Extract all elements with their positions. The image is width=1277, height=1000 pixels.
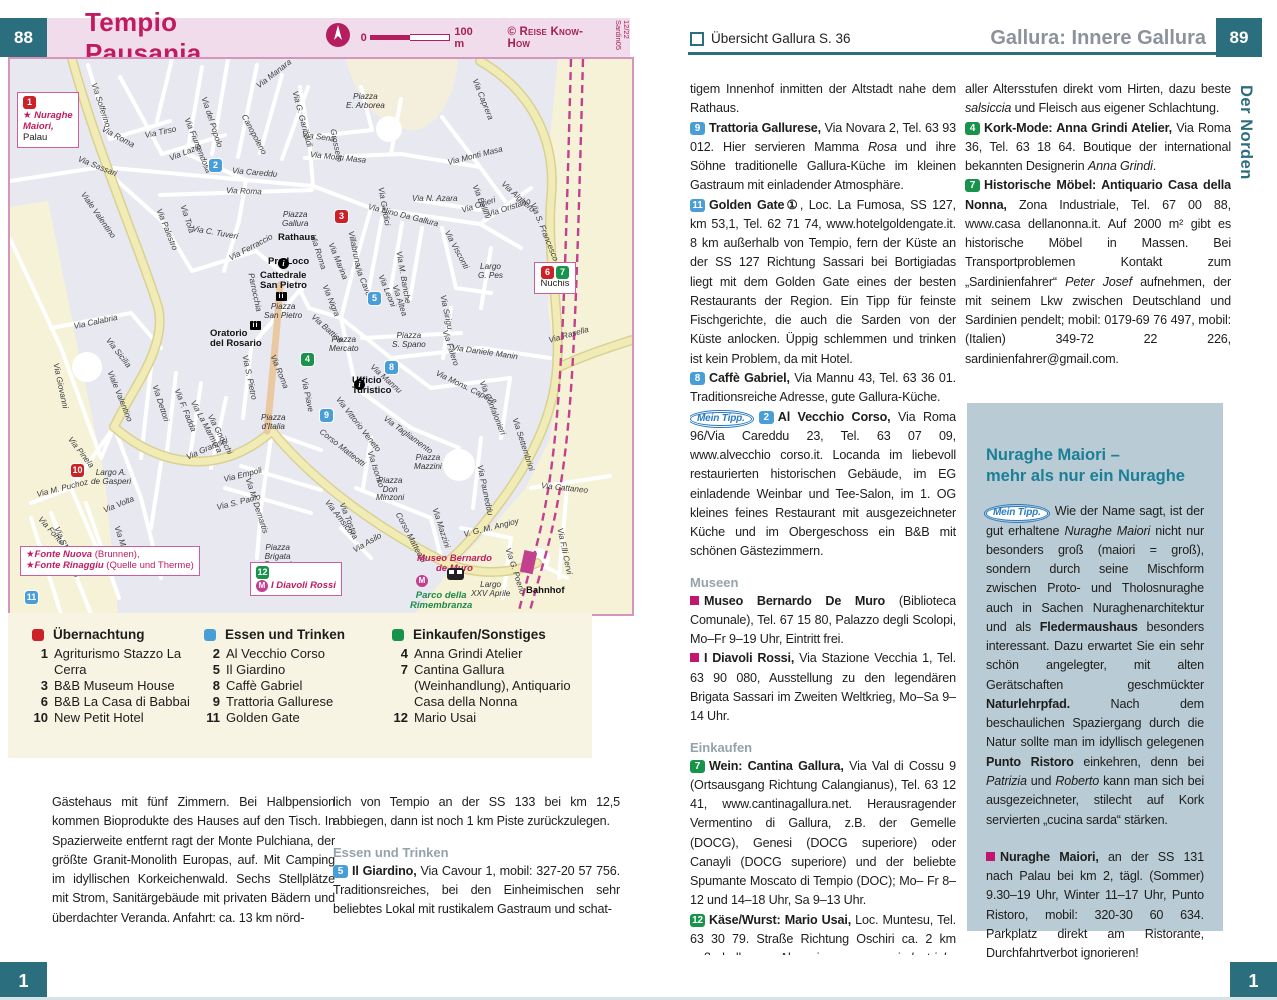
map-label: Piazza Don Minzoni xyxy=(376,477,404,503)
text-run: Anna Grindi xyxy=(1088,159,1153,173)
text-run: , Loc. La Fumosa, SS 127, km 53,1, Tel. … xyxy=(690,198,956,366)
map-label: Piazza Gallura xyxy=(282,211,308,228)
legend-item: 10New Petit Hotel xyxy=(32,710,204,726)
map-marker: 1 xyxy=(23,96,36,109)
legend-item-number: 2 xyxy=(204,646,226,662)
map-info-icon: i xyxy=(278,258,289,269)
infobox-title: Nuraghe Maiori – mehr als nur ein Nuragh… xyxy=(986,445,1204,486)
text-run: und xyxy=(1027,774,1056,788)
paragraph: 4Kork-Mode: Anna Grindi Atelier, Via Rom… xyxy=(965,119,1231,177)
section-heading: Museen xyxy=(690,575,956,590)
infobox-body: Mein Tipp.Wie der Name sagt, ist der gut… xyxy=(986,502,1204,963)
map-label: Largo G. Pes xyxy=(478,263,503,280)
text-run: lich von Tempio an der SS 133 bei km 12,… xyxy=(333,795,620,828)
text-marker-badge: 4 xyxy=(965,122,980,135)
text-run: Käse/Wurst: Mario Usai, xyxy=(709,913,855,927)
legend-column: Übernachtung1Agriturismo Stazzo La Cerra… xyxy=(8,627,204,758)
scale-zero: 0 xyxy=(361,32,367,44)
legend-item-label: Golden Gate xyxy=(226,710,392,726)
header-rule xyxy=(688,52,1216,55)
legend-item-number: 7 xyxy=(392,662,414,710)
callout-direction-label: Nuchis xyxy=(540,279,570,290)
legend-item: 6B&B La Casa di Babbai xyxy=(32,694,204,710)
museum-name: I Diavoli Rossi xyxy=(271,580,336,591)
legend-item-label: Cantina Gallura (Weinhandlung), Antiquar… xyxy=(414,662,588,710)
text-run: Trattoria Gallurese, xyxy=(709,121,825,135)
text-run: aller Altersstufen direkt vom Hirten, da… xyxy=(965,82,1231,96)
legend-item-number: 12 xyxy=(392,710,414,726)
map-label: Piazza d'Italia xyxy=(261,414,286,431)
star-icon: ★ xyxy=(23,110,34,121)
map-label: Via Roma xyxy=(226,187,262,197)
map-label: Via N. Azara xyxy=(412,195,458,204)
paragraph: 5Il Giardino, Via Cavour 1, mobil: 327-2… xyxy=(333,862,620,920)
scale-bar-open xyxy=(410,34,451,41)
map-label: Piazza E. Arborea xyxy=(346,93,385,110)
legend-item-label: Trattoria Gallurese xyxy=(226,694,392,710)
text-run: Nuraghe Maiori, xyxy=(1000,850,1108,864)
text-run: salsiccia xyxy=(965,101,1011,115)
map-legend: Übernachtung1Agriturismo Stazzo La Cerra… xyxy=(8,613,592,758)
text-run: Naturlehrpfad. xyxy=(986,697,1070,711)
legend-item-label: Mario Usai xyxy=(414,710,588,726)
map-label: Largo A. de Gasperi xyxy=(91,469,131,486)
legend-category-label: Essen und Trinken xyxy=(225,627,345,643)
legend-category: Einkaufen/Sonstiges xyxy=(392,627,588,643)
text-run: . xyxy=(1153,159,1156,173)
map-label: Piazza Mercato xyxy=(329,336,359,353)
map-marker: 12 xyxy=(256,566,269,579)
callout-diavoli-rossi: 12MI Diavoli Rossi xyxy=(250,562,342,596)
spring-desc: (Quelle und Therme) xyxy=(104,560,194,571)
city-map-tempio-pausania: Via SolferinoVia ManaraVia del PopoloVia… xyxy=(8,57,634,616)
legend-category: Essen und Trinken xyxy=(204,627,392,643)
copyright: © Reise Know-How xyxy=(507,26,605,50)
cross-reference-label: Übersicht Gallura S. 36 xyxy=(711,31,851,46)
text-marker-badge: 12 xyxy=(690,914,705,927)
text-marker-badge: 7 xyxy=(965,179,980,192)
legend-category-label: Einkaufen/Sonstiges xyxy=(413,627,546,643)
section-heading: Essen und Trinken xyxy=(333,845,620,860)
map-marker: 5 xyxy=(368,292,381,305)
map-label: Parco della Rimembranza xyxy=(410,591,472,611)
callout-fonte: ★Fonte Nuova (Brunnen),★Fonte Rinaggiu (… xyxy=(20,546,200,576)
text-run: Gästehaus mit fünf Zimmern. Bei Halbpens… xyxy=(52,795,335,925)
legend-item: 7Cantina Gallura (Weinhandlung), Antiqua… xyxy=(392,662,588,710)
paragraph: lich von Tempio an der SS 133 bei km 12,… xyxy=(333,793,620,832)
legend-color-swatch xyxy=(32,629,44,641)
text-run: Kork-Mode: Anna Grindi Atelier, xyxy=(984,121,1176,135)
compass-icon xyxy=(325,22,351,53)
magenta-bullet xyxy=(690,653,699,662)
callout-nuchis: 67Nuchis xyxy=(534,262,576,294)
text-marker-badge: 11 xyxy=(690,199,705,212)
page-number-left: 88 xyxy=(0,18,47,57)
nuraghe-maiori-infobox: Nuraghe Maiori – mehr als nur ein Nuragh… xyxy=(967,403,1223,931)
map-label: Oratorio del Rosario xyxy=(210,329,262,349)
text-run: Patrizia xyxy=(986,774,1027,788)
legend-item-label: Anna Grindi Atelier xyxy=(414,646,588,662)
legend-item-label: Agriturismo Stazzo La Cerra xyxy=(54,646,204,678)
text-marker-badge: 5 xyxy=(333,865,348,878)
text-run: zona industriale xyxy=(861,951,952,955)
paragraph: Museo Bernardo De Muro (Biblioteca Comun… xyxy=(690,592,956,650)
legend-item-number: 1 xyxy=(32,646,54,678)
text-run: und Fleisch aus eigener Schlachtung. xyxy=(1011,101,1219,115)
map-label: Piazza San Pietro xyxy=(264,303,302,320)
left-text-column-2: lich von Tempio an der SS 133 bei km 12,… xyxy=(333,793,620,958)
chapter-side-tab: Der Norden xyxy=(1236,85,1255,235)
paragraph: Mein Tipp.Wie der Name sagt, ist der gut… xyxy=(986,502,1204,830)
legend-item-label: Al Vecchio Corso xyxy=(226,646,392,662)
legend-item-number: 9 xyxy=(204,694,226,710)
text-run: Il Giardino, xyxy=(352,864,420,878)
paragraph: 8Caffè Gabriel, Via Mannu 43, Tel. 63 36… xyxy=(690,369,956,408)
map-label: Piazza Mazzini xyxy=(414,454,442,471)
chapter-title: Gallura: Innere Gallura xyxy=(900,27,1206,50)
legend-item: 12Mario Usai xyxy=(392,710,588,726)
magenta-bullet xyxy=(986,852,995,861)
paragraph: tigem Innenhof inmitten der Altstadt nah… xyxy=(690,80,956,119)
map-marker: 4 xyxy=(301,353,314,366)
paragraph: 9Trattoria Gallurese, Via Novara 2, Tel.… xyxy=(690,119,956,196)
legend-item-number: 8 xyxy=(204,678,226,694)
legend-item-number: 6 xyxy=(32,694,54,710)
legend-item: 1Agriturismo Stazzo La Cerra xyxy=(32,646,204,678)
text-marker-badge: 9 xyxy=(690,122,705,135)
map-marker: 2 xyxy=(209,159,222,172)
paragraph: aller Altersstufen direkt vom Hirten, da… xyxy=(965,80,1231,119)
text-marker-badge: 8 xyxy=(690,372,705,385)
text-run: Via Val di Cossu 9 (Ortsausgang Richtung… xyxy=(690,759,956,908)
legend-color-swatch xyxy=(204,629,216,641)
scale-bar-solid xyxy=(370,35,410,40)
text-run: Punto Ristoro xyxy=(986,755,1074,769)
mein-tipp-badge: Mein Tipp. xyxy=(986,506,1048,521)
text-run: Fledermaushaus xyxy=(1040,620,1138,634)
map-title-bar: Tempio Pausania 0 100 m © Reise Know-How… xyxy=(47,18,630,57)
guidebook-spread: 88 Tempio Pausania 0 100 m © Reise Know-… xyxy=(0,0,1277,1000)
map-marker: 7 xyxy=(556,266,569,279)
legend-category: Übernachtung xyxy=(32,627,204,643)
paragraph: 11Golden Gate①, Loc. La Fumosa, SS 127, … xyxy=(690,196,956,369)
legend-item-label: Il Giardino xyxy=(226,662,392,678)
paragraph: 7Wein: Cantina Gallura, Via Val di Cossu… xyxy=(690,757,956,911)
text-run: einkehren, denn bei xyxy=(1074,755,1204,769)
paragraph: Nuraghe Maiori, an der SS 131 nach Palau… xyxy=(986,848,1204,964)
star-icon: ★ xyxy=(26,549,35,560)
map-marker: 9 xyxy=(320,409,333,422)
magenta-bullet xyxy=(690,596,699,605)
legend-column: Einkaufen/Sonstiges4Anna Grindi Atelier7… xyxy=(392,627,588,758)
map-label: Piazza S. Spano xyxy=(392,332,426,349)
text-run: Al Vecchio Corso, xyxy=(778,410,898,424)
callout-subtitle: Palau xyxy=(23,133,73,144)
text-run: Via Roma 96/Via Careddu 23, Tel. 63 07 0… xyxy=(690,410,956,559)
map-marker: 11 xyxy=(25,591,38,604)
section-heading: Einkaufen xyxy=(690,740,956,755)
map-scale: 0 100 m xyxy=(361,26,486,50)
map-marker: 8 xyxy=(385,361,398,374)
legend-item: 2Al Vecchio Corso xyxy=(204,646,392,662)
callout-line: ★Fonte Rinaggiu (Quelle und Therme) xyxy=(26,561,194,572)
cross-reference: Übersicht Gallura S. 36 xyxy=(690,31,851,46)
metro-icon: M xyxy=(256,580,268,592)
text-marker-badge: 2 xyxy=(759,411,774,424)
right-text-column: aller Altersstufen direkt vom Hirten, da… xyxy=(965,80,1231,398)
spring-desc: (Brunnen), xyxy=(92,549,140,560)
legend-item-number: 10 xyxy=(32,710,54,726)
middle-text-column: tigem Innenhof inmitten der Altstadt nah… xyxy=(690,80,956,955)
text-run: I Diavoli Rossi, xyxy=(704,651,799,665)
legend-item-number: 5 xyxy=(204,662,226,678)
legend-item-number: 4 xyxy=(392,646,414,662)
text-run: Rosa xyxy=(868,140,897,154)
paragraph: I Diavoli Rossi, Via Stazione Vecchia 1,… xyxy=(690,649,956,726)
mein-tipp-badge: Mein Tipp. xyxy=(690,412,752,427)
text-marker-badge: 7 xyxy=(690,760,705,773)
text-run: Wein: Cantina Gallura, xyxy=(709,759,849,773)
callout-line: MI Diavoli Rossi xyxy=(256,580,336,592)
left-text-column-1: Gästehaus mit fünf Zimmern. Bei Halbpens… xyxy=(52,793,335,958)
star-icon: ★ xyxy=(26,560,35,571)
map-bus-icon xyxy=(447,568,464,580)
text-run: Peter Josef xyxy=(1065,275,1132,289)
map-label: Largo XXV Aprile xyxy=(471,581,510,598)
map-reference-icon xyxy=(690,32,704,46)
legend-item-label: B&B Museum House xyxy=(54,678,204,694)
legend-item: 5Il Giardino xyxy=(204,662,392,678)
map-metro-icon: M xyxy=(416,575,428,587)
legend-item-label: Caffè Gabriel xyxy=(226,678,392,694)
scale-label: 100 m xyxy=(454,26,485,50)
text-run: Museo Bernardo De Muro xyxy=(704,594,899,608)
paragraph: 12Käse/Wurst: Mario Usai, Loc. Muntesu, … xyxy=(690,911,956,955)
text-run: Nuraghe Maiori xyxy=(1064,524,1150,538)
text-run: Golden Gate① xyxy=(709,198,800,212)
map-marker: 3 xyxy=(335,210,348,223)
map-museum-icon: ii xyxy=(250,321,261,330)
legend-item: 11Golden Gate xyxy=(204,710,392,726)
map-museum-icon: ii xyxy=(276,292,287,301)
map-edition: Sardin05 12/22 xyxy=(614,20,631,56)
spring-name: Fonte Nuova xyxy=(35,549,93,560)
text-run: an der SS 131 nach Palau bei km 2, tägl.… xyxy=(986,850,1204,960)
map-label: Cattedrale San Pietro xyxy=(260,271,307,291)
map-label: Bahnhof xyxy=(526,586,565,596)
text-run: nicht nur besonders groß (maiori = groß)… xyxy=(986,524,1204,634)
legend-item-number: 11 xyxy=(204,710,226,726)
map-marker: 6 xyxy=(541,266,554,279)
legend-item: 9Trattoria Gallurese xyxy=(204,694,392,710)
paragraph: Gästehaus mit fünf Zimmern. Bei Halbpens… xyxy=(52,793,335,928)
map-info-icon: i xyxy=(354,379,365,390)
legend-item-number: 3 xyxy=(32,678,54,694)
legend-column: Essen und Trinken2Al Vecchio Corso5Il Gi… xyxy=(204,627,392,758)
legend-item: 4Anna Grindi Atelier xyxy=(392,646,588,662)
map-marker: 10 xyxy=(71,464,84,477)
legend-item: 3B&B Museum House xyxy=(32,678,204,694)
chapter-tab-bottom-left: 1 xyxy=(0,962,47,1000)
chapter-tab-bottom-right: 1 xyxy=(1230,962,1277,1000)
page-number-right: 89 xyxy=(1216,18,1262,57)
legend-color-swatch xyxy=(392,629,404,641)
callout-name: ★ Nuraghe Maiori, xyxy=(23,111,73,133)
legend-item-label: B&B La Casa di Babbai xyxy=(54,694,204,710)
text-run: Roberto xyxy=(1055,774,1099,788)
paragraph: 7Historische Möbel: Antiquario Casa dell… xyxy=(965,176,1231,369)
spring-name: Fonte Rinaggiu xyxy=(35,560,104,571)
legend-category-label: Übernachtung xyxy=(53,627,145,643)
callout-nuraghe-maiori: 1★ Nuraghe Maiori,Palau xyxy=(17,92,79,148)
text-run: tigem Innenhof inmitten der Altstadt nah… xyxy=(690,82,956,115)
text-run: Caffè Gabriel, xyxy=(709,371,794,385)
legend-item-label: New Petit Hotel xyxy=(54,710,204,726)
paragraph: Mein Tipp.2Al Vecchio Corso, Via Roma 96… xyxy=(690,408,956,562)
legend-item: 8Caffè Gabriel xyxy=(204,678,392,694)
